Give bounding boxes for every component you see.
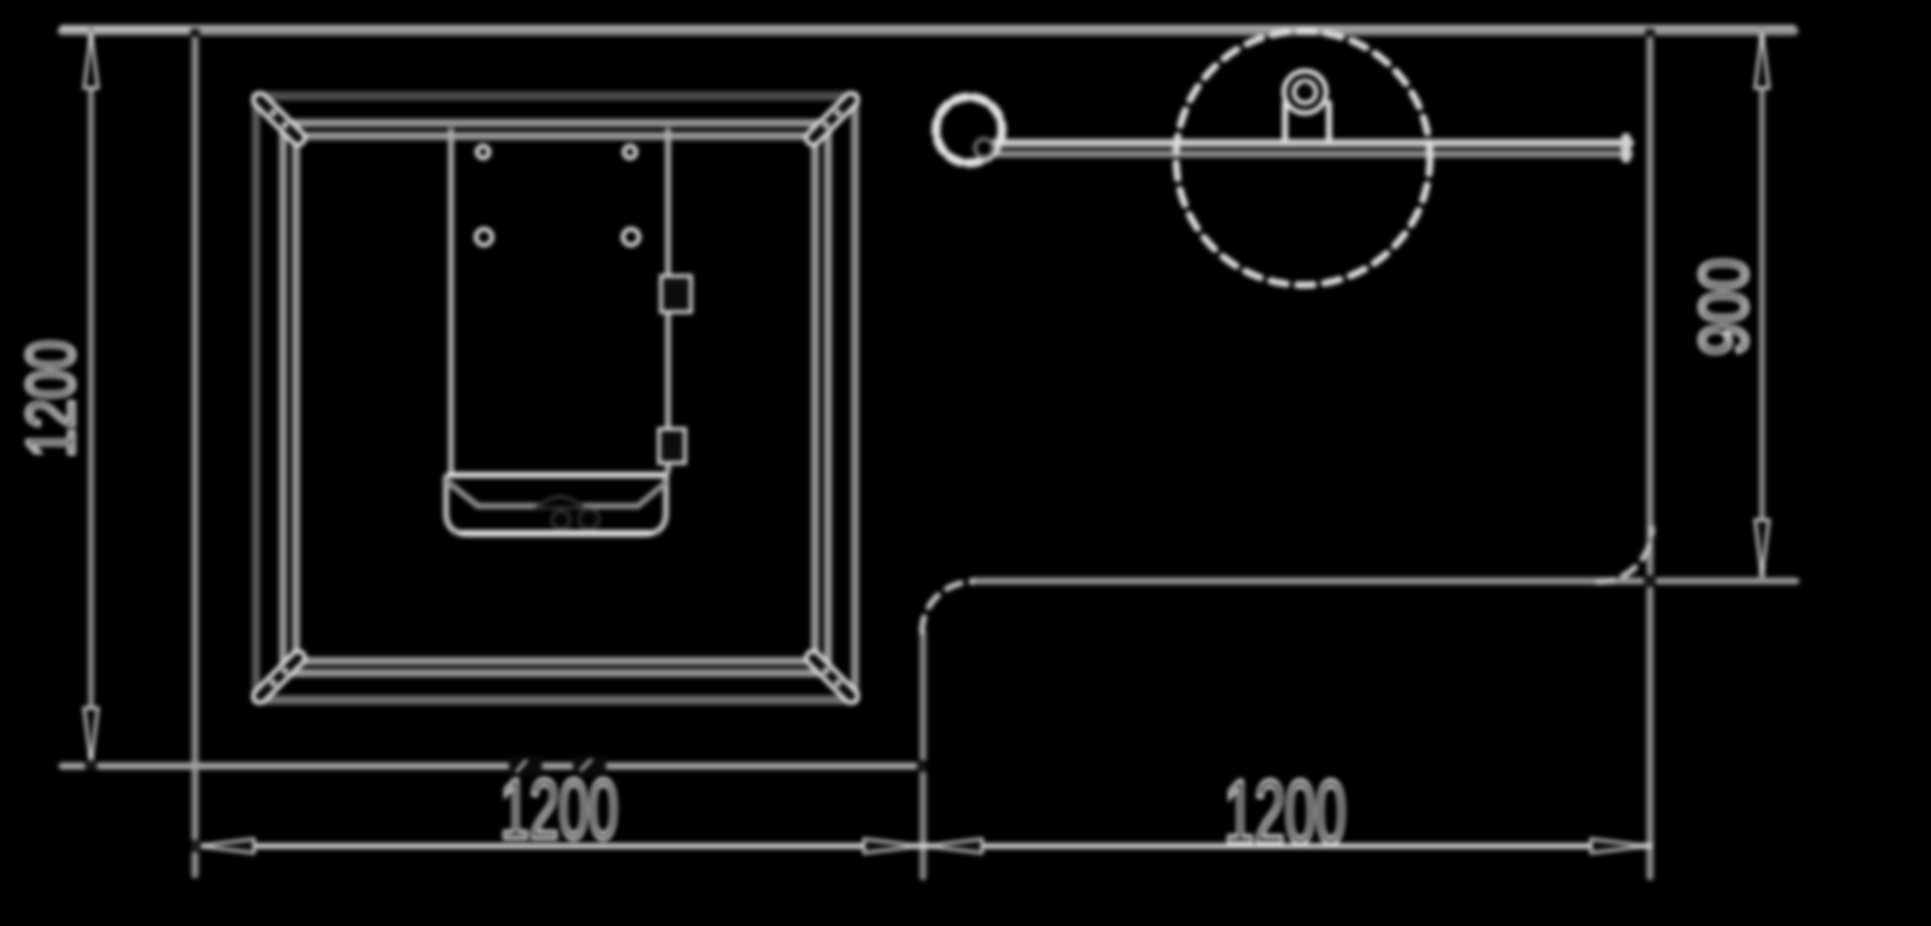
svg-text:1200: 1200 — [1224, 763, 1346, 863]
svg-text:900: 900 — [1686, 258, 1762, 356]
svg-text:1200: 1200 — [500, 762, 618, 856]
svg-text:1200: 1200 — [13, 340, 89, 458]
